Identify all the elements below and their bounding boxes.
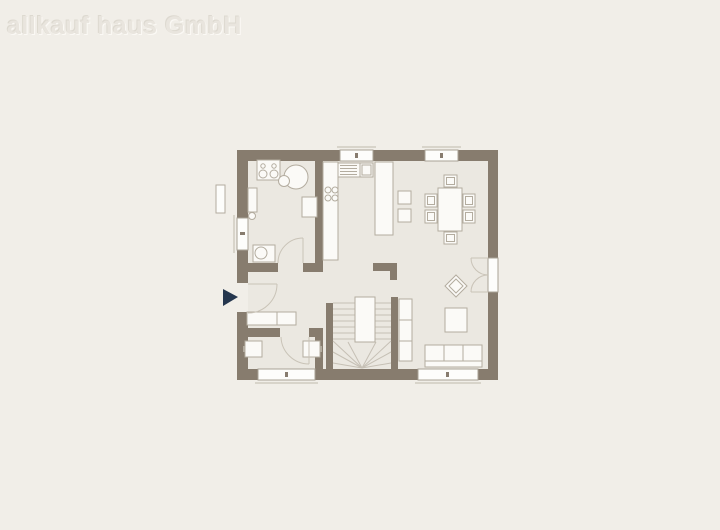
wc-fixture-right bbox=[303, 341, 320, 357]
wall-right-a bbox=[488, 150, 498, 258]
window-dining-tick bbox=[440, 153, 443, 158]
wc-fixture-right-tank bbox=[320, 346, 322, 352]
wc-fixture-left bbox=[245, 341, 262, 357]
wall-stair-left bbox=[326, 303, 333, 369]
cooktop-burner-1 bbox=[325, 187, 331, 193]
wall-top-b bbox=[373, 150, 425, 161]
bar-stool-1 bbox=[398, 191, 411, 204]
wall-stair-right bbox=[391, 297, 398, 369]
dining-table bbox=[438, 188, 462, 231]
wall-top-a bbox=[237, 150, 340, 161]
sofa bbox=[425, 345, 482, 367]
dining-chair-right-1 bbox=[463, 194, 475, 207]
wall-left-a bbox=[237, 150, 248, 218]
wall-kitchen-stub bbox=[373, 263, 397, 271]
floorplan-svg bbox=[0, 0, 720, 530]
kitchen-counter bbox=[323, 162, 338, 260]
wall-right-b bbox=[488, 292, 498, 380]
wall-bottom-a bbox=[237, 369, 258, 380]
kitchen-island bbox=[375, 162, 393, 235]
window-wc-tick bbox=[285, 372, 288, 377]
living-shelf bbox=[399, 299, 412, 361]
wc-fixture-left-tank bbox=[243, 346, 245, 352]
wall-utility-bottom-b bbox=[303, 263, 315, 272]
utility-basin bbox=[249, 213, 256, 220]
floorplan-canvas: allkauf haus GmbH bbox=[0, 0, 720, 530]
exterior-element bbox=[216, 185, 225, 213]
wall-wc-top-a bbox=[248, 328, 280, 337]
wall-utility-bottom-a bbox=[248, 263, 278, 272]
stair-void bbox=[355, 297, 375, 342]
cooktop-burner-2 bbox=[332, 187, 338, 193]
terrace-door-gap bbox=[488, 258, 498, 292]
utility-wall-unit bbox=[248, 188, 257, 212]
entrance-arrow bbox=[223, 289, 238, 306]
bar-stool-2 bbox=[398, 209, 411, 222]
dining-chair-right-2 bbox=[463, 210, 475, 223]
utility-chair bbox=[279, 176, 290, 187]
dining-chair-top bbox=[444, 175, 457, 187]
cooktop-burner-3 bbox=[325, 195, 331, 201]
hall-wardrobe bbox=[247, 312, 296, 325]
wall-kitchen-stub-tail bbox=[390, 271, 397, 280]
dining-chair-left-2 bbox=[425, 210, 437, 223]
wall-bottom-b bbox=[315, 369, 418, 380]
wall-wc-top-b bbox=[309, 328, 323, 337]
cooktop-burner-4 bbox=[332, 195, 338, 201]
coffee-table bbox=[445, 308, 467, 332]
dining-chair-left-1 bbox=[425, 194, 437, 207]
window-living-tick bbox=[446, 372, 449, 377]
window-kitchen-tick bbox=[355, 153, 358, 158]
window-utility-tick bbox=[240, 232, 245, 235]
wall-left-b bbox=[237, 250, 248, 283]
utility-cabinet bbox=[302, 197, 317, 217]
dining-chair-bottom bbox=[444, 232, 457, 244]
